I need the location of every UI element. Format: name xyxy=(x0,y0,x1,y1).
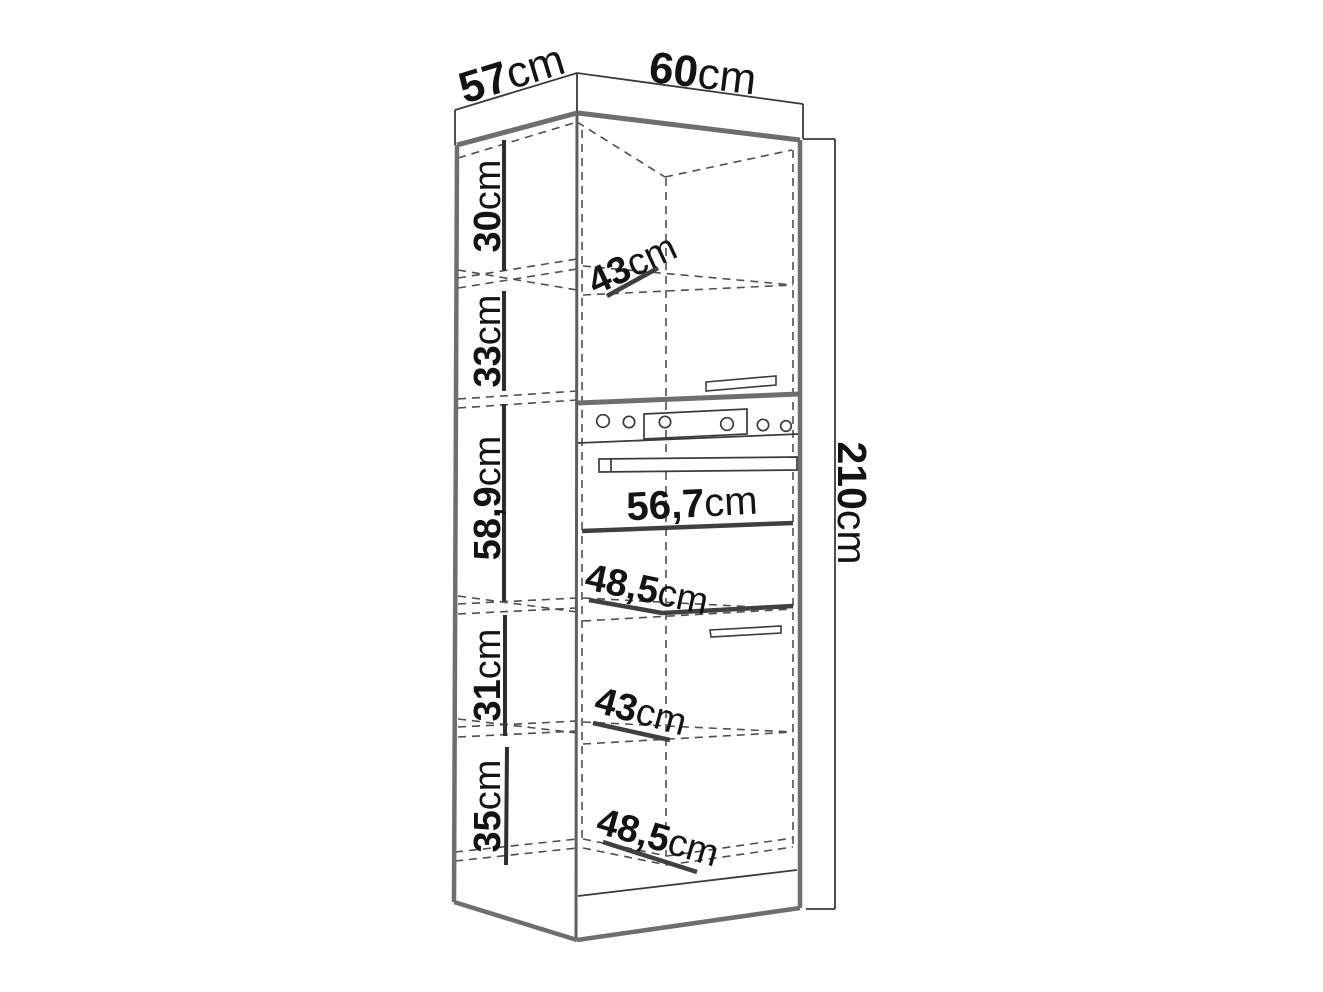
label-section-30: 30cm xyxy=(467,160,509,253)
label-interior-oven-width: 56,7cm xyxy=(625,479,758,530)
door-handle-lower xyxy=(710,626,781,637)
label-overall-width: 60cm xyxy=(646,43,759,105)
label-section-58-9: 58,9cm xyxy=(467,436,509,561)
dimension-labels: 57cm 60cm 210cm 30cm 33cm 58,9cm 31cm 35… xyxy=(453,35,875,875)
cabinet-dimension-diagram: 57cm 60cm 210cm 30cm 33cm 58,9cm 31cm 35… xyxy=(0,0,1323,992)
label-interior-bottom-width: 48,5cm xyxy=(592,801,723,876)
label-interior-middle-width: 48,5cm xyxy=(581,556,712,623)
oven-knobs xyxy=(597,415,792,432)
label-section-35: 35cm xyxy=(467,760,509,853)
label-overall-height: 210cm xyxy=(829,441,875,564)
page: 57cm 60cm 210cm 30cm 33cm 58,9cm 31cm 35… xyxy=(0,0,1323,992)
front-left-edge xyxy=(576,113,577,940)
label-section-31: 31cm xyxy=(467,629,509,722)
label-section-33: 33cm xyxy=(467,295,509,388)
label-overall-depth: 57cm xyxy=(453,35,570,113)
oven-door-handle xyxy=(599,457,797,472)
door-handle-upper xyxy=(706,376,776,391)
